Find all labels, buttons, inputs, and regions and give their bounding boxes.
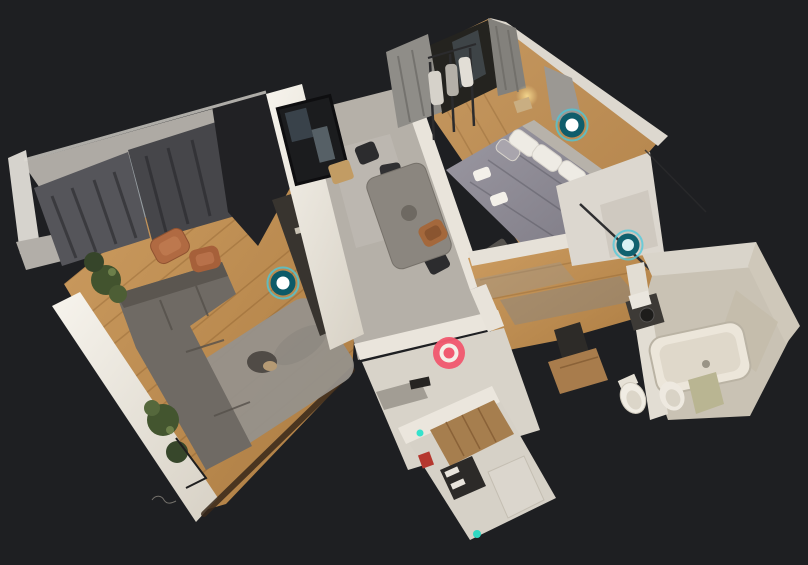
dollhouse-3d-view[interactable]: [0, 0, 808, 565]
current-position-dot: [444, 348, 455, 359]
drain: [702, 360, 710, 368]
teal-led: [473, 530, 481, 538]
current-position-marker[interactable]: [433, 337, 465, 369]
waypoint-marker-living-room[interactable]: [268, 268, 299, 299]
waypoint-marker-bedroom[interactable]: [557, 110, 588, 141]
washing-machine-door: [640, 308, 654, 322]
waypoint-center: [277, 277, 290, 290]
dollhouse-viewport[interactable]: [0, 0, 808, 565]
waypoint-center: [622, 239, 634, 251]
cat-tree-top: [263, 361, 277, 371]
table-centerpiece: [401, 205, 417, 221]
hanging-clothes: [445, 64, 459, 97]
waypoint-marker-hallway-closet[interactable]: [614, 231, 643, 260]
teal-led: [417, 430, 424, 437]
waypoint-center: [566, 119, 579, 132]
